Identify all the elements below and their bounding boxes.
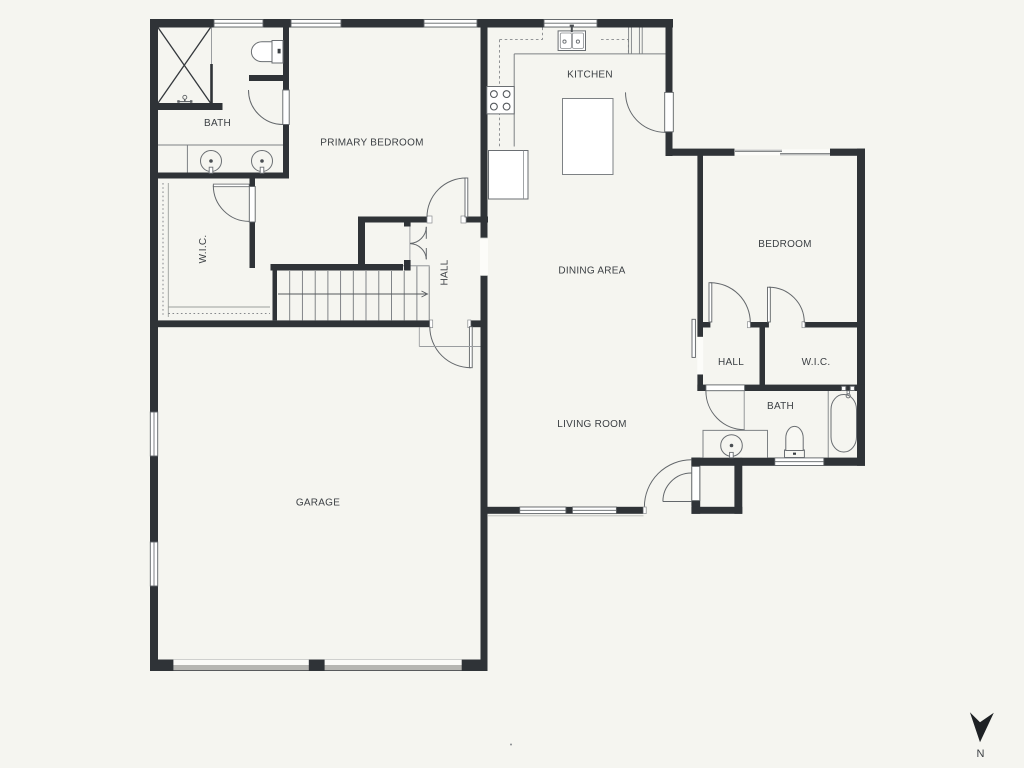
svg-text:W.I.C.: W.I.C. bbox=[198, 235, 209, 264]
svg-text:KITCHEN: KITCHEN bbox=[567, 70, 613, 81]
svg-text:HALL: HALL bbox=[718, 357, 744, 368]
svg-text:BATH: BATH bbox=[767, 401, 794, 412]
svg-text:DINING AREA: DINING AREA bbox=[558, 266, 625, 277]
svg-text:BATH: BATH bbox=[204, 118, 231, 129]
svg-text:W.I.C.: W.I.C. bbox=[802, 357, 831, 368]
svg-text:HALL: HALL bbox=[440, 259, 451, 285]
svg-text:BEDROOM: BEDROOM bbox=[758, 239, 811, 250]
svg-text:GARAGE: GARAGE bbox=[296, 498, 340, 509]
svg-text:PRIMARY BEDROOM: PRIMARY BEDROOM bbox=[320, 138, 423, 149]
svg-text:LIVING ROOM: LIVING ROOM bbox=[557, 419, 626, 430]
svg-text:N: N bbox=[977, 748, 985, 760]
